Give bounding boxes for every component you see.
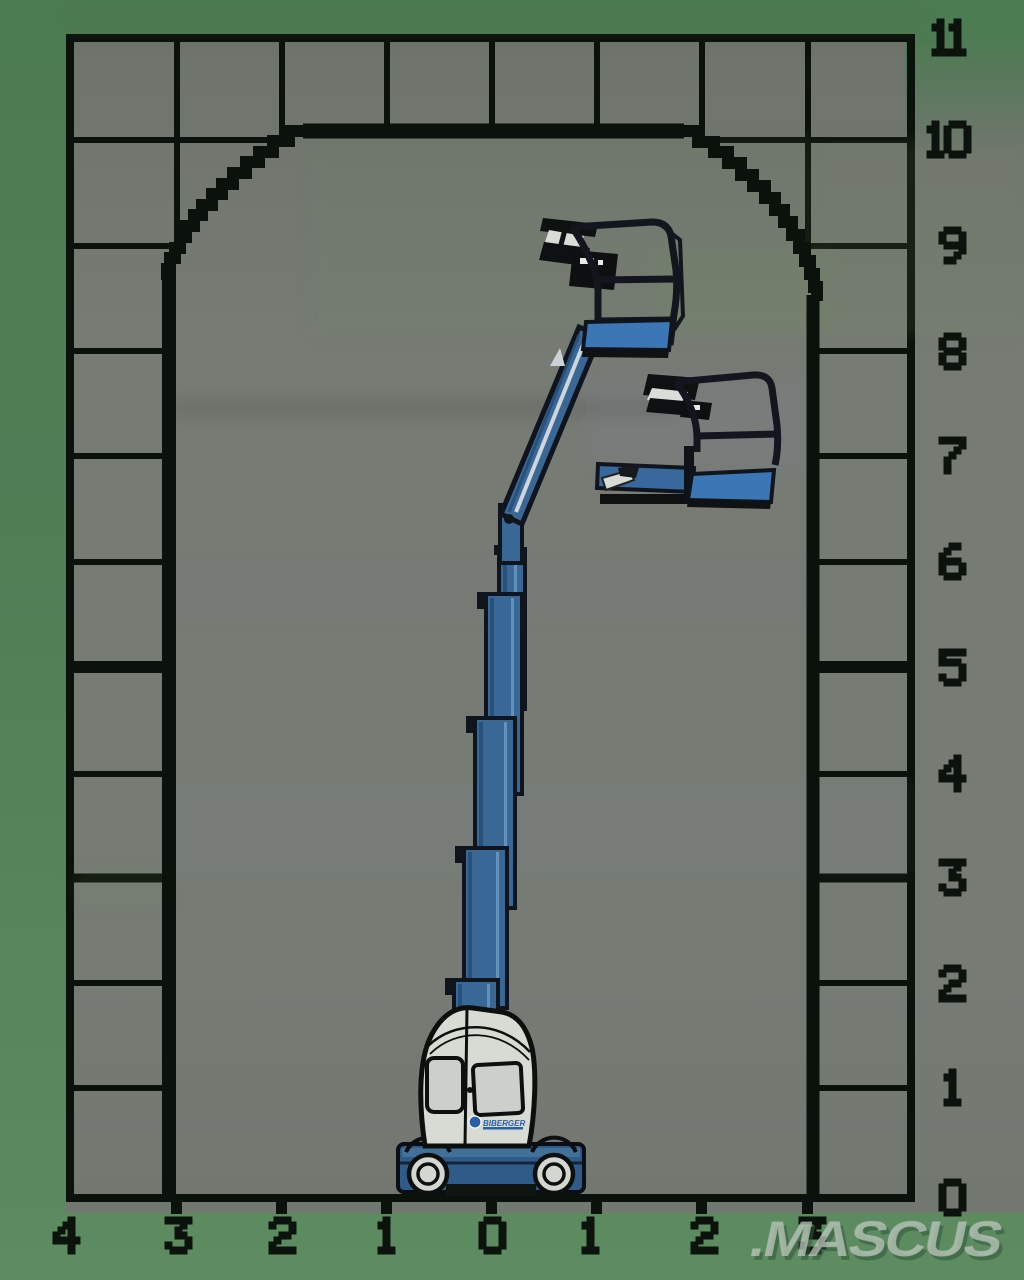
svg-text:BIBERGER: BIBERGER: [483, 1119, 525, 1128]
svg-text:.MASCUS: .MASCUS: [745, 1211, 1007, 1267]
